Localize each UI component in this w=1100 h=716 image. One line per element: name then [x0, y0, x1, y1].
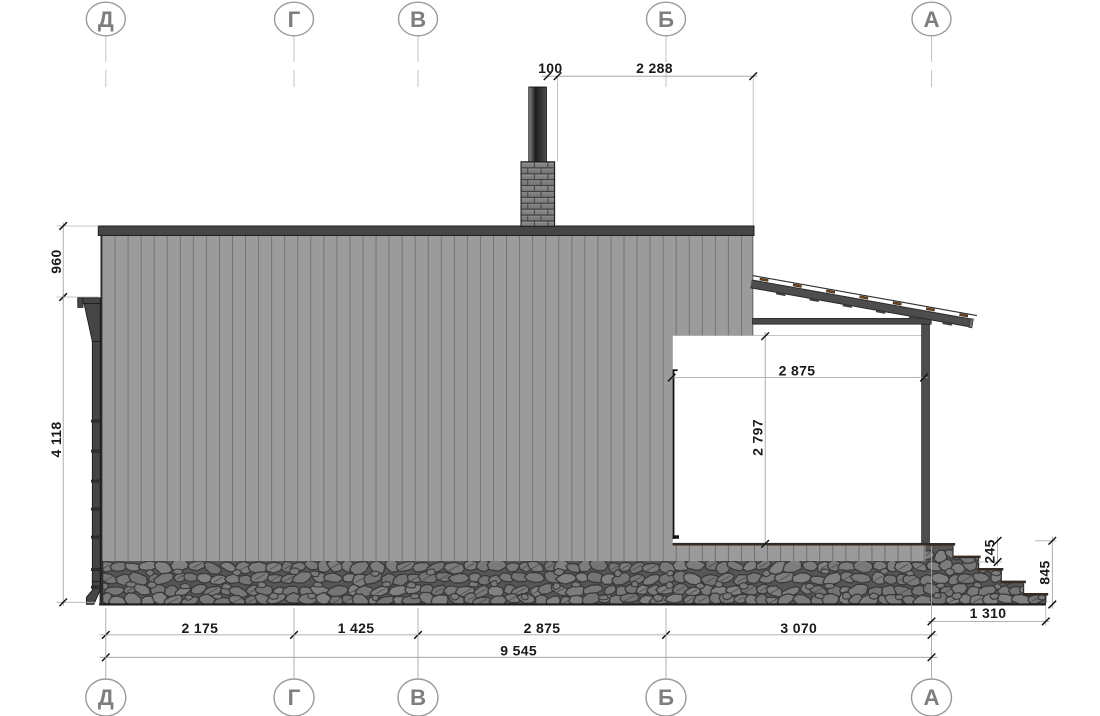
svg-text:2 797: 2 797 [750, 419, 766, 456]
svg-text:2 875: 2 875 [779, 362, 816, 378]
svg-text:2 288: 2 288 [636, 60, 673, 76]
svg-text:4 118: 4 118 [48, 421, 64, 457]
svg-text:9 545: 9 545 [500, 642, 537, 658]
svg-text:Б: Б [658, 7, 674, 32]
svg-text:Г: Г [288, 685, 301, 710]
svg-text:В: В [410, 7, 426, 32]
svg-text:А: А [923, 685, 939, 710]
svg-text:845: 845 [1037, 560, 1053, 584]
svg-text:Б: Б [658, 685, 674, 710]
svg-text:1 310: 1 310 [970, 605, 1007, 621]
svg-text:100: 100 [538, 60, 562, 76]
svg-text:3 070: 3 070 [780, 620, 817, 636]
svg-text:2 875: 2 875 [524, 620, 561, 636]
svg-text:2 175: 2 175 [182, 620, 219, 636]
svg-text:Д: Д [98, 7, 114, 32]
svg-text:А: А [923, 7, 939, 32]
svg-text:Д: Д [98, 685, 114, 710]
svg-text:В: В [410, 685, 426, 710]
svg-text:245: 245 [981, 539, 997, 563]
svg-text:Г: Г [288, 7, 301, 32]
svg-text:1 425: 1 425 [338, 620, 375, 636]
svg-text:960: 960 [48, 249, 64, 273]
